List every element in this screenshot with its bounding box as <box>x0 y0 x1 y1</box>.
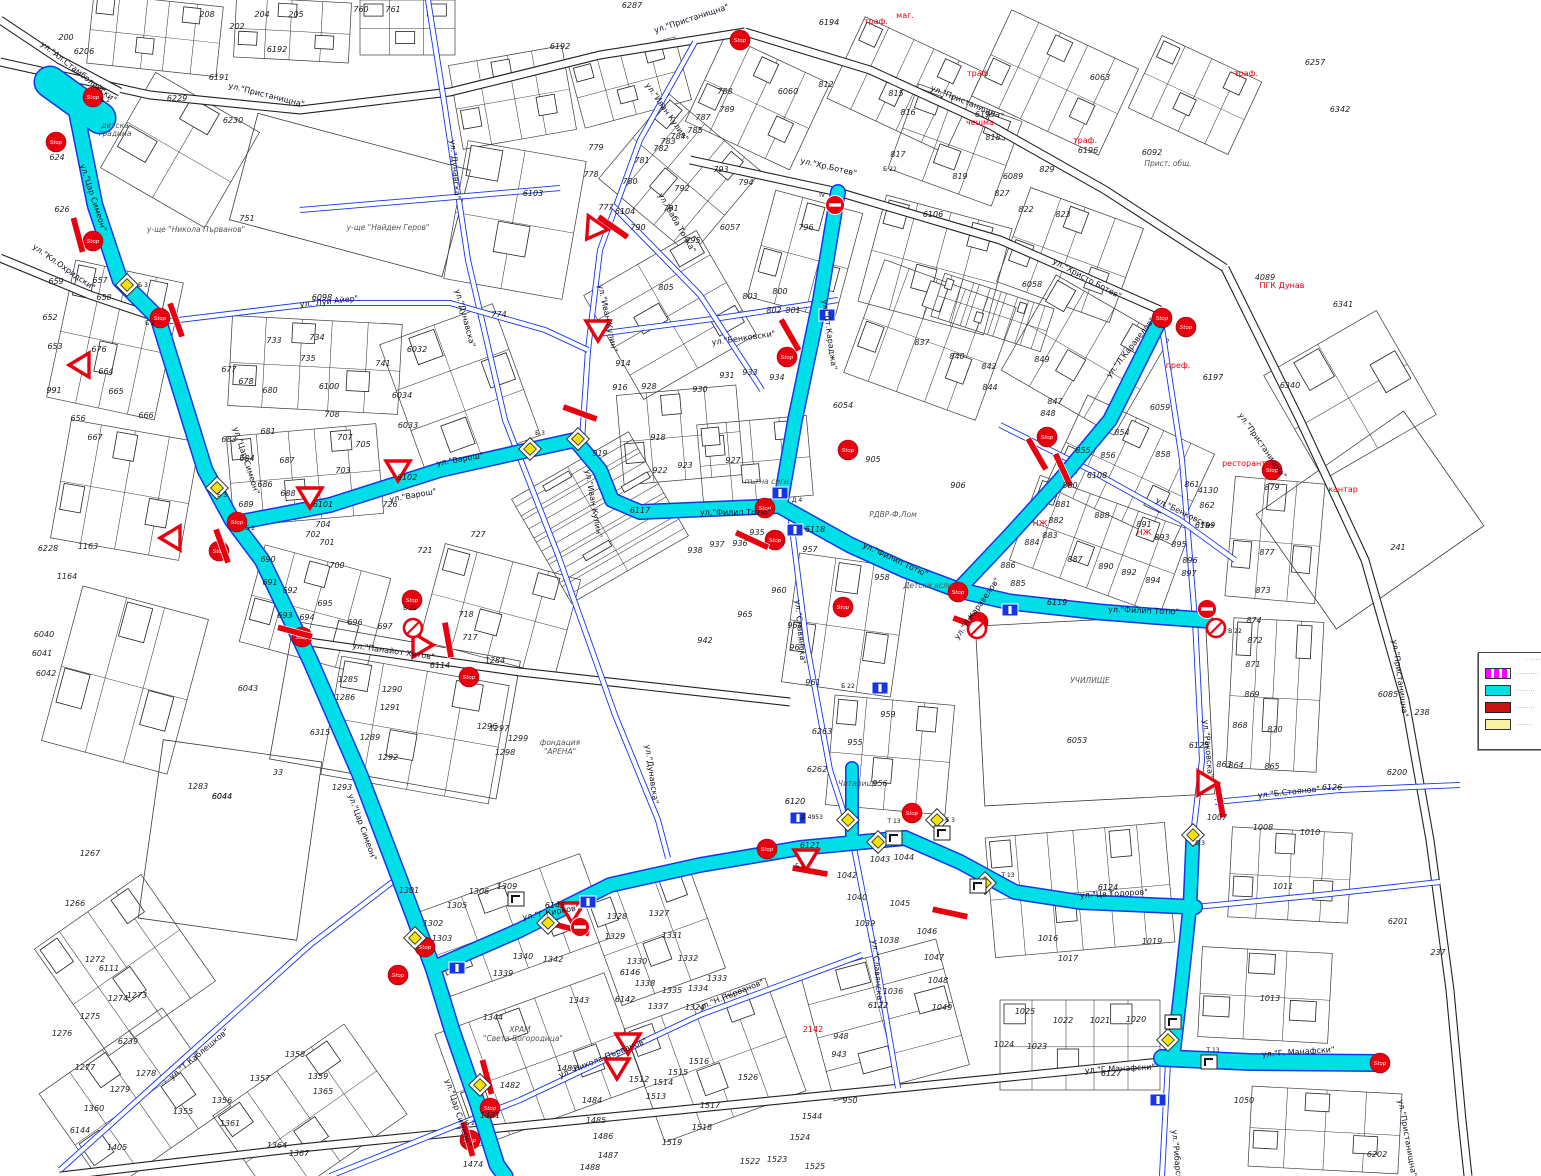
building-footprint <box>304 561 330 588</box>
parcel-number-label: 6262 <box>807 765 827 774</box>
building-footprint <box>493 221 530 257</box>
yield-sign-icon[interactable] <box>160 526 180 550</box>
parcel-line <box>1362 1092 1366 1172</box>
yield-sign-icon[interactable] <box>69 353 89 377</box>
parcel-number-label: 964 <box>787 621 802 630</box>
parcel-number-label: 888 <box>1094 511 1109 520</box>
parcel-number-label: 1481 <box>480 1111 500 1120</box>
parcel-line <box>501 151 525 289</box>
parcel-number-label: 842 <box>981 362 996 371</box>
info-sign-icon[interactable] <box>772 487 788 499</box>
parcel-number-label: 6043 <box>238 684 258 693</box>
building-footprint <box>140 691 174 732</box>
parcel-number-label: 1023 <box>1027 1042 1047 1051</box>
parcel-number-label: 700 <box>329 561 344 570</box>
info-sign-icon[interactable] <box>1150 1094 1166 1106</box>
stop-sign-text: Stop <box>842 448 855 454</box>
parcel-number-label: 887 <box>1067 555 1083 564</box>
parcel-line <box>407 671 428 789</box>
parcel-number-label: 774 <box>491 310 506 319</box>
parcel-number-label: 684 <box>239 454 254 463</box>
parcel-number-label: 787 <box>695 113 711 122</box>
parcel-number-label: 676 <box>91 345 106 354</box>
parcel-number-label: 781 <box>634 156 649 165</box>
road-number-label: 6106 <box>923 210 943 219</box>
parcel-number-label: 1512 <box>629 1075 649 1084</box>
map-canvas[interactable]: StopStopStopStopStopStopStopStopStopStop… <box>0 0 1541 1176</box>
parcel-number-label: 1279 <box>110 1085 130 1094</box>
yield-sign-icon[interactable] <box>605 1059 629 1079</box>
parcel-number-label: 837 <box>914 338 930 347</box>
stop-sign-icon[interactable]: Stop <box>730 30 750 50</box>
red-poi-label: траф. <box>967 69 991 78</box>
parcel-number-label: 879 <box>1264 483 1279 492</box>
parcel-number-label: 897 <box>1181 569 1197 578</box>
parcel-number-label: 6063 <box>1090 73 1110 82</box>
parcel-line <box>1255 479 1265 599</box>
closure-bar-icon[interactable] <box>778 318 802 352</box>
parcel-number-label: 862 <box>1199 501 1214 510</box>
parcel-block <box>747 190 862 320</box>
building-footprint <box>643 936 672 966</box>
building-footprint <box>1296 625 1312 659</box>
sign-table-icon[interactable] <box>508 892 524 906</box>
parcel-number-label: 1356 <box>212 1096 232 1105</box>
parcel-number-label: 665 <box>108 387 123 396</box>
building-footprint <box>135 37 154 54</box>
parcel-number-label: 1327 <box>649 909 670 918</box>
stop-sign-icon[interactable]: Stop <box>833 597 853 617</box>
info-sign-icon[interactable] <box>787 524 803 536</box>
building-footprint <box>543 471 572 491</box>
no-entry-bar <box>829 203 841 206</box>
building-footprint <box>60 483 85 513</box>
parcel-number-label: 892 <box>1121 568 1136 577</box>
road-number-label: 6126 <box>1322 783 1342 792</box>
sign-code-label: Б 3 <box>535 430 545 437</box>
road-number-label: 6119 <box>1047 598 1067 607</box>
parcel-number-label: 923 <box>677 461 692 470</box>
parcel-number-label: 849 <box>1034 355 1049 364</box>
building-footprint <box>573 64 594 82</box>
parcel-number-label: 761 <box>385 5 400 14</box>
building-footprint <box>1056 350 1086 381</box>
parcel-number-label: 928 <box>641 382 656 391</box>
parcel-line <box>1108 511 1139 596</box>
building-footprint <box>583 540 612 560</box>
stop-sign-text: Stop <box>463 675 476 681</box>
parcel-line <box>535 998 576 1111</box>
parcel-number-label: 991 <box>46 386 61 395</box>
info-sign-icon[interactable] <box>872 682 888 694</box>
poi-label: пътна сигн. <box>745 477 792 486</box>
parcel-number-label: 6341 <box>1333 300 1353 309</box>
parcel-number-label: 1048 <box>928 976 948 985</box>
building-footprint <box>442 548 469 575</box>
sign-table-icon[interactable] <box>970 879 986 893</box>
large-parcel-outline <box>230 113 471 276</box>
road-blue-fill <box>1162 1062 1168 1176</box>
parcel-number-label: 933 <box>742 368 757 377</box>
stop-sign-icon[interactable]: Stop <box>46 132 66 152</box>
building-footprint <box>1232 540 1252 568</box>
building-footprint <box>1370 351 1411 393</box>
parcel-number-label: 937 <box>709 540 725 549</box>
parcel-number-label: 1284 <box>485 656 505 665</box>
parcel-number-label: 6200 <box>1387 768 1407 777</box>
poi-label: Детски ясли <box>902 581 952 590</box>
parcel-number-label: 905 <box>865 455 880 464</box>
stop-sign-text: Stop <box>1374 1061 1387 1067</box>
building-footprint <box>461 108 482 130</box>
stop-sign-icon[interactable]: Stop <box>902 803 922 823</box>
stop-sign-icon[interactable]: Stop <box>1152 308 1172 328</box>
info-bar <box>878 684 881 692</box>
parcel-number-label: 1267 <box>80 849 101 858</box>
building-footprint <box>1248 953 1275 974</box>
parcel-line <box>1269 620 1277 770</box>
stop-sign-text: Stop <box>87 239 100 245</box>
parcel-number-label: 718 <box>458 610 473 619</box>
parcel-number-label: 938 <box>687 546 702 555</box>
parcel-number-label: 890 <box>1098 562 1113 571</box>
road-number-label: 6102 <box>397 473 417 482</box>
parcel-line <box>1137 825 1147 945</box>
parcel-number-label: 681 <box>260 427 275 436</box>
building-footprint <box>1233 876 1253 897</box>
parcel-number-label: 726 <box>382 500 397 509</box>
red-poi-label: ПГК Дунав <box>1260 281 1305 290</box>
parcel-number-label: 1277 <box>75 1063 96 1072</box>
info-bar <box>778 489 781 497</box>
red-poi-label: кантар <box>1328 485 1358 494</box>
parcel-number-label: 906 <box>950 481 965 490</box>
legend-swatch-icon <box>1485 702 1511 713</box>
parcel-number-label: 1544 <box>802 1112 822 1121</box>
parcel-number-label: 894 <box>1145 576 1160 585</box>
building-footprint <box>346 371 370 392</box>
parcel-line <box>364 323 369 413</box>
parcel-number-label: 667 <box>87 433 103 442</box>
parcel-number-label: 6089 <box>1003 172 1023 181</box>
parcel-number-label: 935 <box>749 528 764 537</box>
parcel-number-label: 664 <box>98 367 113 376</box>
building-footprint <box>182 7 201 24</box>
parcel-number-label: 1474 <box>463 1160 483 1169</box>
parcel-number-label: 1016 <box>1038 934 1058 943</box>
parcel-number-label: 848 <box>1040 409 1055 418</box>
parcel-number-label: 871 <box>1245 660 1260 669</box>
parcel-number-label: 822 <box>1018 205 1033 214</box>
parcel-number-label: 1364 <box>267 1141 287 1150</box>
parcel-number-label: 955 <box>847 738 862 747</box>
parcel-number-label: 1299 <box>508 734 528 743</box>
parcel-block <box>42 586 209 774</box>
parcel-number-label: 687 <box>279 456 295 465</box>
parcel-number-label: 1272 <box>85 955 105 964</box>
parcel-number-label: 844 <box>982 383 997 392</box>
stop-sign-text: Stop <box>906 811 919 817</box>
building-footprint <box>475 609 502 636</box>
road-number-label: 6104 <box>615 207 635 216</box>
stop-sign-text: Stop <box>734 38 747 44</box>
parcel-number-label: 885 <box>1010 579 1025 588</box>
parcel-number-label: 884 <box>1024 538 1039 547</box>
info-bar <box>1156 1096 1159 1104</box>
building-footprint <box>1017 302 1027 314</box>
road-number-label: 6101 <box>313 500 333 509</box>
parcel-number-label: 960 <box>771 586 786 595</box>
parcel-number-label: 856 <box>1100 451 1115 460</box>
legend-swatch-icon <box>1485 685 1511 696</box>
road-number-label: 6108 <box>1087 471 1107 480</box>
parcel-number-label: 6057 <box>720 223 741 232</box>
parcel-number-label: 1283 <box>188 782 208 791</box>
stop-sign-icon[interactable]: Stop <box>1370 1053 1390 1073</box>
red-poi-label: чешма <box>966 118 994 127</box>
parcel-number-label: 624 <box>49 153 64 162</box>
road-number-label: 6114 <box>430 661 450 670</box>
parcel-line <box>162 1 169 71</box>
parcel-number-label: 735 <box>300 354 315 363</box>
parcel-number-label: 657 <box>92 276 108 285</box>
stop-sign-text: Stop <box>392 973 405 979</box>
parcel-number-label: 734 <box>309 333 324 342</box>
building-footprint <box>836 962 871 990</box>
stop-sign-icon[interactable]: Stop <box>388 965 408 985</box>
parcel-number-label: 874 <box>1246 616 1261 625</box>
sign-table-icon[interactable] <box>934 826 950 840</box>
parcel-number-label: 1039 <box>855 919 875 928</box>
parcel-number-label: 1357 <box>250 1074 271 1083</box>
stop-sign-text: Stop <box>781 355 794 361</box>
sign-table-icon[interactable] <box>886 831 902 845</box>
parcel-number-label: 942 <box>697 636 712 645</box>
parcel-number-label: 751 <box>239 214 254 223</box>
building-footprint <box>1157 41 1180 64</box>
info-sign-icon[interactable] <box>580 896 596 908</box>
closure-bar-icon[interactable] <box>442 622 455 659</box>
building-footprint <box>441 417 475 452</box>
stop-sign-icon[interactable]: Stop <box>227 512 247 532</box>
parcel-line <box>328 321 333 411</box>
parcel-number-label: 1519 <box>662 1138 682 1147</box>
poi-label: Читалище <box>838 779 879 788</box>
road-number-label: 6146 <box>620 968 640 977</box>
sign-code-label: Т 13 <box>1000 872 1014 879</box>
no-stopping-sign-icon[interactable] <box>1207 619 1225 637</box>
parcel-number-label: 948 <box>833 1032 848 1041</box>
parcel-line <box>1287 482 1297 602</box>
stop-sign-text: Stop <box>87 95 100 101</box>
parcel-number-label: 704 <box>315 520 330 529</box>
no-entry-sign-icon[interactable] <box>1198 600 1217 619</box>
road-number-label: 6124 <box>1098 883 1118 892</box>
closure-bar-icon[interactable] <box>70 217 85 253</box>
parcel-number-label: 702 <box>305 530 320 539</box>
red-poi-label: траф. <box>1234 69 1258 78</box>
parcel-line <box>818 558 836 687</box>
poi-label: ХРАМ <box>508 1025 531 1034</box>
parcel-number-label: 6059 <box>1150 403 1170 412</box>
parcel-number-label: 1483 <box>557 1064 577 1073</box>
parcel-number-label: 1334 <box>688 984 708 993</box>
street-name-label: ул."Ст.Караджа" <box>820 299 839 370</box>
parcel-number-label: 1309 <box>497 882 517 891</box>
parcel-number-label: 886 <box>1000 561 1015 570</box>
parcel-number-label: 677 <box>221 365 237 374</box>
no-entry-sign-icon[interactable] <box>571 918 590 937</box>
parcel-number-label: 1344 <box>483 1013 503 1022</box>
stop-sign-icon[interactable]: Stop <box>838 440 858 460</box>
parcel-number-label: 656 <box>70 414 85 423</box>
road-number-label: 6121 <box>800 841 820 850</box>
parcel-number-label: 965 <box>737 610 752 619</box>
parcel-number-label: 870 <box>1267 725 1282 734</box>
highlight-street[interactable] <box>1162 1058 1380 1063</box>
parcel-number-label: 1514 <box>653 1078 673 1087</box>
parcel-number-label: 1276 <box>52 1029 72 1038</box>
poi-label: у-ще "Найден Геров" <box>346 223 430 232</box>
parcel-block <box>1128 36 1262 155</box>
info-sign-icon[interactable] <box>1002 604 1018 616</box>
parcel-number-label: 868 <box>1232 721 1247 730</box>
parcel-number-label: 6085 <box>1378 690 1398 699</box>
stop-sign-icon[interactable]: Stop <box>83 231 103 251</box>
parcel-number-label: 931 <box>719 371 734 380</box>
sign-table-icon[interactable] <box>1201 1055 1217 1069</box>
parcel-number-label: 958 <box>874 573 889 582</box>
sign-code-label: Б 3 <box>1195 840 1205 847</box>
closure-bar-icon[interactable] <box>562 404 598 422</box>
parcel-number-label: 943 <box>831 1050 846 1059</box>
red-poi-label: 2142 <box>803 1025 823 1034</box>
parcel-number-label: 1046 <box>917 927 937 936</box>
parcel-number-label: 780 <box>622 177 637 186</box>
parcel-number-label: 1049 <box>932 1003 952 1012</box>
parcel-number-label: 1355 <box>173 1107 193 1116</box>
parcel-number-label: 705 <box>355 440 370 449</box>
building-footprint <box>249 598 275 625</box>
parcel-number-label: 1019 <box>1142 937 1162 946</box>
stop-sign-icon[interactable]: Stop <box>757 839 777 859</box>
red-poi-label: траф. <box>1073 136 1097 145</box>
sign-code-label: Б 22 <box>403 605 417 612</box>
building-footprint <box>40 938 73 973</box>
building-footprint <box>1203 996 1230 1017</box>
parcel-number-label: 1273 <box>127 991 147 1000</box>
parcel-number-label: 1332 <box>678 954 698 963</box>
info-sign-icon[interactable] <box>449 962 465 974</box>
parcel-number-label: 658 <box>96 293 111 302</box>
parcel-line <box>765 72 805 158</box>
parcel-block <box>1225 476 1325 603</box>
parcel-number-label: 922 <box>652 466 667 475</box>
parcel-number-label: 707 <box>337 433 353 442</box>
parcel-line <box>960 283 974 326</box>
sign-code-label: Б 3 <box>945 817 955 824</box>
parcel-number-label: 6342 <box>1330 105 1350 114</box>
closure-bar-icon[interactable] <box>932 906 969 920</box>
parcel-line <box>1320 832 1325 922</box>
parcel-number-label: 6228 <box>38 544 58 553</box>
parcel-line <box>1081 218 1115 312</box>
parcel-number-label: 678 <box>238 377 253 386</box>
red-poi-label: маг. <box>896 11 914 20</box>
parcel-number-label: 847 <box>1047 397 1063 406</box>
parcel-number-label: 785 <box>687 126 702 135</box>
street-name-label: ул."Пристанищна" <box>653 2 730 35</box>
parcel-outline <box>444 141 586 300</box>
road-number-label: 6127 <box>1101 1069 1122 1078</box>
parcel-number-label: 202 <box>229 22 244 31</box>
parcel-number-label: 701 <box>319 538 334 547</box>
parcel-number-label: 690 <box>260 555 275 564</box>
poi-label: у-ще "Никола Първанов" <box>146 225 245 234</box>
parcel-number-label: 741 <box>375 359 390 368</box>
parcel-number-label: 1275 <box>80 1012 100 1021</box>
parcel-number-label: 6263 <box>812 727 832 736</box>
parcel-number-label: 1045 <box>890 899 910 908</box>
parcel-number-label: 204 <box>254 10 269 19</box>
parcel-line <box>750 420 757 500</box>
parcel-number-label: 1335 <box>662 986 682 995</box>
parcel-number-label: 1008 <box>1253 823 1273 832</box>
stop-sign-icon[interactable]: Stop <box>1176 317 1196 337</box>
parcel-number-label: 1007 <box>1207 813 1228 822</box>
parcel-number-label: 877 <box>1259 548 1275 557</box>
parcel-number-label: 1164 <box>57 572 77 581</box>
parcel-number-label: 1523 <box>767 1155 787 1164</box>
stop-sign-text: Stop <box>406 598 419 604</box>
parcel-number-label: 950 <box>842 1096 857 1105</box>
building-footprint <box>768 116 794 143</box>
parcel-number-label: 916 <box>612 383 627 392</box>
parcel-number-label: 961 <box>805 678 820 687</box>
parcel-number-label: 790 <box>630 223 645 232</box>
street-name-label: ул."Дунавска" <box>448 139 462 199</box>
sign-table-icon[interactable] <box>1165 1015 1181 1029</box>
parcel-number-label: 1515 <box>668 1068 688 1077</box>
road-number-label: 6118 <box>805 525 825 534</box>
stop-sign-text: Stop <box>231 520 244 526</box>
parcel-number-label: 800 <box>772 287 787 296</box>
parcel-number-label: 1526 <box>738 1073 758 1082</box>
parcel-number-label: 727 <box>470 530 486 539</box>
stop-sign-icon[interactable]: Stop <box>459 667 479 687</box>
parcel-number-label: 1050 <box>1234 1096 1254 1105</box>
parcel-number-label: 1047 <box>924 953 945 962</box>
stop-sign-icon[interactable]: Stop <box>777 347 797 367</box>
info-bar <box>586 898 589 906</box>
street-name-label: ул."Рибарска" <box>1170 1129 1184 1176</box>
legend-item-label: ········ <box>1516 722 1533 728</box>
building-footprint <box>1305 1093 1330 1112</box>
parcel-number-label: 896 <box>1182 556 1197 565</box>
poi-label: фондация <box>540 738 581 747</box>
parcel-number-label: 963 <box>789 643 804 652</box>
parcel-number-label: 1022 <box>1053 1016 1073 1025</box>
parcel-number-label: 1305 <box>447 901 467 910</box>
parcel-number-label: 6060 <box>778 87 798 96</box>
parcel-number-label: 782 <box>653 144 668 153</box>
parcel-number-label: 927 <box>725 456 741 465</box>
stop-sign-icon[interactable]: Stop <box>1037 427 1057 447</box>
no-stopping-sign-icon[interactable] <box>404 619 422 637</box>
legend-swatch-icon <box>1485 668 1511 679</box>
building-footprint <box>113 432 138 462</box>
no-entry-sign-icon[interactable] <box>826 196 845 215</box>
